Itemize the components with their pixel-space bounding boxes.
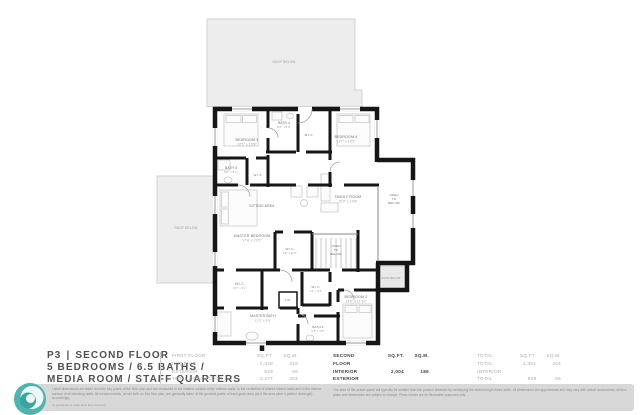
table-row: TOTAL INTERIOR4,352404 [477, 360, 561, 375]
open-to-below-right-label: OPENTOBELOW [388, 193, 400, 205]
table-cell: SQ.M. [273, 352, 298, 360]
bath-3-label: BATH 39'6" x 8'1" [224, 166, 238, 174]
table-cell: TOTAL FIRST FLOOR [172, 375, 239, 383]
bath-4-label: BATH 48'0" x 5'5" [277, 121, 291, 129]
table-header-row: FIRST FLOORSQ.FT.SQ.M. [172, 352, 298, 360]
floor-plan-svg: ROOF BELOWROOF BELOWROOF BELOWBEDROOM 31… [0, 0, 640, 360]
table-cell: 929 [239, 368, 273, 376]
wic-bath3-label: W.I.C. [253, 173, 262, 177]
table-cell: EXTERIOR [333, 375, 370, 383]
table-cell: INTERIOR [172, 360, 239, 368]
wic-small-label: W.I.C.4'4" x 5'5" [310, 285, 323, 293]
table-cell: 2,348 [239, 360, 273, 368]
table-cell: 186 [404, 368, 429, 376]
table-cell [404, 375, 429, 383]
bath-2-label: BATH 26'8" x 5'6" [312, 325, 325, 333]
table-row: EXTERIOR [333, 375, 429, 383]
wic-bottom-left-label: W.I.C.9'2" x 9'1" [233, 282, 247, 290]
table-cell [370, 375, 404, 383]
first-floor-table: FIRST FLOORSQ.FT.SQ.M.INTERIOR2,348218EX… [172, 352, 298, 383]
table-header-row: SECOND FLOORSQ.FT.SQ.M. [333, 352, 429, 367]
master-bedroom-label: MASTER BEDROOM17'4" x 21'0" [234, 234, 271, 243]
table-cell: 2,004 [370, 368, 404, 376]
title-separator: | [66, 350, 70, 362]
table-row: INTERIOR2,348218 [172, 360, 298, 368]
open-to-below-center-label: OPENTOBELOW [330, 244, 342, 256]
wic-center-label: W.I.C.4'8" x 11'5" [283, 247, 297, 255]
table-cell: 304 [273, 375, 298, 383]
table-cell: 86 [273, 368, 298, 376]
table-row: EXTERIOR92986 [172, 368, 298, 376]
page-number: P3 [47, 350, 61, 362]
roof-below-right-label: ROOF BELOW [381, 276, 400, 280]
roof-below-left-label: ROOF BELOW [174, 226, 197, 230]
disclaimer-left-text: Listed dimensions are taken from the key… [52, 387, 322, 401]
table-cell: SQ.FT. [239, 352, 273, 360]
bedroom-4-label: BEDROOM 413'7" x 13'2" [335, 135, 358, 144]
brand-logo-icon [13, 382, 47, 415]
table-cell: SECOND FLOOR [333, 352, 370, 367]
table-cell: TOTAL [477, 352, 502, 360]
table-cell: 218 [273, 360, 298, 368]
disclaimer-left-small-text: no guarantee is made as to their accurac… [52, 403, 252, 407]
title-divider [160, 352, 161, 386]
table-row: TOTAL FIRST FLOOR3,277304 [172, 375, 298, 383]
table-cell: SQ.FT. [502, 352, 536, 360]
floorplan-page: ROOF BELOWROOF BELOWROOF BELOWBEDROOM 31… [0, 0, 640, 415]
family-room-label: FAMILY ROOM15'0" x 14'8" [335, 195, 361, 204]
table-cell: 3,277 [239, 375, 273, 383]
table-cell: SQ.M. [404, 352, 429, 367]
table-row: INTERIOR2,004186 [333, 368, 429, 376]
wic-top-label: W.I.C. [304, 133, 313, 137]
linen-closet-label: LIN. [285, 298, 291, 302]
floor-name: SECOND FLOOR [75, 350, 169, 362]
master-bath-label: MASTER BATH11'5" x 9'9" [250, 314, 276, 322]
table-header-row: TOTALSQ.FT.SQ.M. [477, 352, 561, 360]
table-cell: SQ.M. [536, 352, 561, 360]
table-cell: INTERIOR [333, 368, 370, 376]
table-cell: EXTERIOR [172, 368, 239, 376]
table-cell: 4,352 [502, 360, 536, 375]
table-cell: 404 [536, 360, 561, 375]
roof-below-top-label: ROOF BELOW [272, 60, 295, 64]
sitting-area-label: SITTING AREA [249, 204, 275, 208]
table-cell: SQ.FT. [370, 352, 404, 367]
table-cell: FIRST FLOOR [172, 352, 239, 360]
table-cell: TOTAL INTERIOR [477, 360, 502, 375]
bedroom-3-label: BEDROOM 312'1" x 13'9" [236, 138, 259, 147]
bedroom-2-label: BEDROOM 212'6" x 11'10" [345, 295, 368, 304]
disclaimer-right-text: The area of the actual space will typica… [333, 388, 629, 397]
